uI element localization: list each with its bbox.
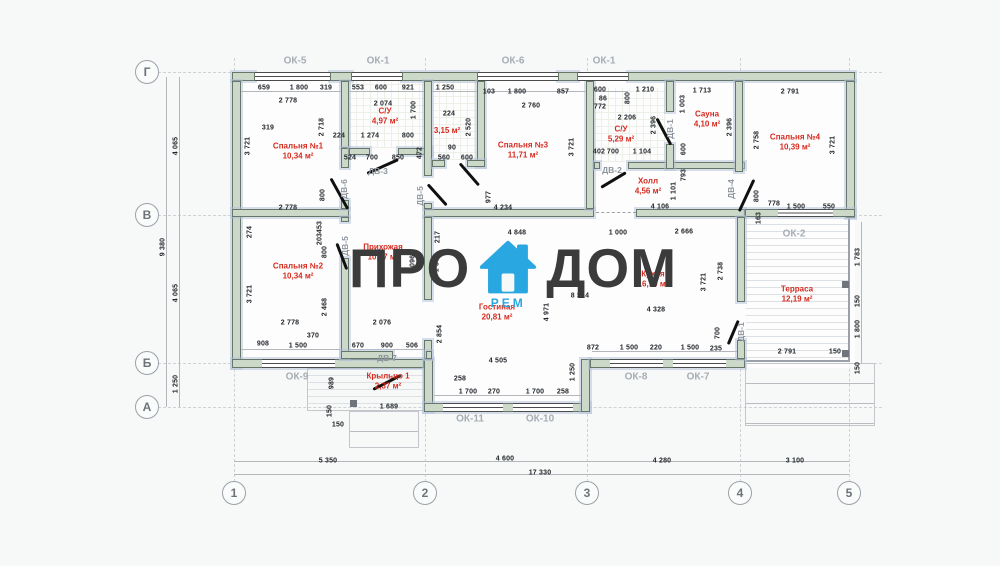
dimension-label: 453 — [317, 221, 324, 233]
dimension-label: 772 — [594, 104, 606, 111]
dimension-label: 4 065 — [173, 284, 180, 303]
dimension-label: 5 350 — [319, 458, 338, 465]
porch-post — [350, 400, 357, 407]
room-area: 10,39 м² — [770, 143, 820, 153]
room-name: С/У — [608, 125, 634, 135]
dimension-label: 2 778 — [279, 98, 298, 105]
room-area: 4,97 м² — [372, 117, 398, 127]
dimension-label: 103 — [483, 89, 495, 96]
room-label: С/У5,29 м² — [608, 125, 634, 146]
dimension-label: 3 721 — [245, 137, 252, 156]
room-area: 11,71 м² — [498, 151, 548, 161]
interior-wall — [737, 340, 745, 359]
dimension-label: 258 — [454, 376, 466, 383]
dimension-label: 600 — [594, 87, 606, 94]
window-ok5 — [255, 72, 330, 81]
dimension-label: 370 — [307, 333, 319, 340]
dimension-label: 1 713 — [693, 88, 712, 95]
interior-wall — [666, 144, 674, 169]
room-label: Спальня №311,71 м² — [498, 141, 548, 162]
dimension-label: 600 — [681, 143, 688, 155]
dimension-label: 1 104 — [633, 149, 652, 156]
interior-wall — [424, 203, 432, 209]
dimension-label: 1 700 — [411, 101, 418, 120]
window-ok10 — [513, 403, 573, 412]
dimension-label: 4 848 — [508, 230, 527, 237]
dimension-label: 2 468 — [322, 298, 329, 317]
dimension-label: 1 000 — [609, 230, 628, 237]
dimension-label: 2 076 — [373, 320, 392, 327]
dimension-label: 989 — [329, 377, 336, 389]
floor-plan-canvas: ПРО РЕМ ДОМ 6591 8003192 7783192241 2748… — [0, 0, 1000, 566]
room-name: Спальня №1 — [273, 142, 323, 152]
exterior-wall — [330, 72, 352, 81]
room-label: Крыльцо 12,37 м² — [366, 372, 409, 393]
dimension-label: 150 — [855, 295, 862, 307]
dimension-label: 2 718 — [319, 118, 326, 137]
dimension-label: 1 800 — [508, 89, 527, 96]
door-label: ДВ-6 — [339, 179, 349, 199]
window-ok9 — [262, 359, 335, 368]
room-label: Спальня №110,34 м² — [273, 142, 323, 163]
dimension-label: 1 783 — [855, 248, 862, 267]
dimension-label: 3 721 — [830, 136, 837, 155]
window-ok7 — [673, 359, 726, 368]
window-label: ОК-1 — [593, 56, 616, 67]
dimension-label: 150 — [327, 405, 334, 417]
dimension-label: 1 800 — [290, 85, 309, 92]
dimension-label: 2 778 — [279, 205, 298, 212]
dimension-label: 9 380 — [160, 238, 167, 257]
dimension-label: 150 — [855, 362, 862, 374]
dimension-label: 857 — [557, 89, 569, 96]
dimension-label: 2 854 — [437, 325, 444, 344]
window-ok1b — [578, 72, 628, 81]
axis-marker-1: 1 — [222, 481, 246, 505]
axis-marker-5: 5 — [837, 481, 861, 505]
dimension-label: 3 721 — [247, 285, 254, 304]
dimension-label: 1 250 — [570, 363, 577, 382]
dimension-label: 2 791 — [781, 89, 800, 96]
interior-wall — [426, 351, 432, 359]
dimension-label: 17 330 — [529, 470, 552, 477]
exterior-wall — [232, 81, 241, 368]
exterior-wall — [846, 81, 855, 218]
house-icon: РЕМ — [479, 239, 537, 297]
dimension-label: 800 — [402, 133, 414, 140]
dimension-label: 1 274 — [361, 133, 380, 140]
exterior-wall — [232, 72, 255, 81]
dimension-label: 274 — [247, 226, 254, 238]
room-name: Терраса — [781, 285, 813, 295]
dim-line — [861, 222, 862, 363]
exterior-wall — [558, 72, 578, 81]
door-label: ДВ-5 — [415, 186, 425, 206]
dimension-label: 800 — [320, 189, 327, 201]
dimension-label: 800 — [754, 190, 761, 202]
dimension-label: 2 778 — [281, 320, 300, 327]
terrace-post — [842, 350, 849, 357]
interior-wall — [666, 81, 674, 112]
room-area: 4,56 м² — [635, 187, 661, 197]
dimension-label: 4 234 — [494, 205, 513, 212]
dimension-label: 2 396 — [727, 118, 734, 137]
room-label: Спальня №410,39 м² — [770, 133, 820, 154]
dimension-label: 553 — [352, 85, 364, 92]
room-area: 12,19 м² — [781, 295, 813, 305]
dimension-label: 2 738 — [718, 262, 725, 281]
dimension-label: 258 — [557, 389, 569, 396]
dimension-label: 224 — [443, 111, 455, 118]
dimension-label: 1 500 — [681, 345, 700, 352]
door-label: ДВ-2 — [602, 165, 622, 175]
porch-stairs — [349, 411, 419, 448]
dimension-label: 560 — [438, 155, 450, 162]
dimension-label: 270 — [488, 389, 500, 396]
window-label: ОК-10 — [526, 414, 554, 425]
dimension-label: 150 — [829, 349, 841, 356]
dimension-label: 3 721 — [569, 138, 576, 157]
exterior-wall — [402, 72, 478, 81]
dim-line — [179, 77, 180, 407]
room-area: 4,10 м² — [694, 120, 720, 130]
room-label: Холл4,56 м² — [635, 177, 661, 198]
door-label: ДВ-7 — [377, 353, 397, 363]
dimension-label: 850 — [392, 155, 404, 162]
terrace-post — [842, 281, 849, 288]
watermark: ПРО РЕМ ДОМ — [349, 239, 677, 297]
dimension-label: 1 250 — [173, 375, 180, 394]
dimension-label: 1 500 — [787, 204, 806, 211]
door-label: ДВ-3 — [368, 166, 388, 176]
door-label: ДВ-1 — [736, 322, 746, 342]
window-label: ОК-11 — [456, 414, 484, 425]
dimension-label: 700 — [607, 149, 619, 156]
room-label: 3,15 м² — [434, 126, 460, 136]
window-label: ОК-2 — [783, 229, 806, 240]
dimension-label: 778 — [768, 201, 780, 208]
window-label: ОК-1 — [367, 56, 390, 67]
room-area: 10,34 м² — [273, 272, 323, 282]
dimension-label: 472 — [417, 147, 424, 159]
room-name: Холл — [635, 177, 661, 187]
terrace-open-edge — [745, 360, 849, 362]
exterior-wall — [628, 72, 855, 81]
axis-marker-2: 2 — [413, 481, 437, 505]
watermark-badge: РЕМ — [491, 296, 526, 310]
dimension-label: 700 — [366, 155, 378, 162]
dimension-label: 800 — [322, 246, 329, 258]
dimension-label: 150 — [332, 422, 344, 429]
watermark-text-left: ПРО — [349, 241, 470, 296]
dimension-label: 600 — [375, 85, 387, 92]
dimension-label: 86 — [599, 96, 607, 103]
dimension-label: 4 328 — [647, 307, 666, 314]
interior-wall — [737, 217, 745, 302]
exterior-wall — [581, 359, 590, 412]
axis-marker-А: А — [135, 395, 159, 419]
dim-line — [240, 349, 428, 350]
interior-wall — [341, 217, 349, 222]
room-area: 3,15 м² — [434, 126, 460, 136]
dimension-label: 524 — [344, 155, 356, 162]
dimension-label: 1 689 — [380, 404, 399, 411]
dimension-label: 550 — [823, 204, 835, 211]
room-name: Спальня №3 — [498, 141, 548, 151]
window-ok11 — [443, 403, 503, 412]
dimension-label: 2 791 — [778, 349, 797, 356]
dimension-label: 800 — [625, 92, 632, 104]
dimension-label: 3 721 — [701, 273, 708, 292]
dimension-label: 4 600 — [496, 456, 515, 463]
dimension-label: 1 700 — [526, 389, 545, 396]
room-area: 10,34 м² — [273, 152, 323, 162]
interior-wall — [341, 258, 349, 359]
dimension-label: 600 — [461, 155, 473, 162]
door-label: ДВ-1 — [665, 119, 675, 139]
dimension-label: 1 500 — [289, 343, 308, 350]
window-ok8 — [610, 359, 663, 368]
dimension-label: 2 758 — [754, 131, 761, 150]
room-label: Терраса12,19 м² — [781, 285, 813, 306]
room-label: С/У4,97 м² — [372, 107, 398, 128]
dimension-label: 1 500 — [620, 345, 639, 352]
dimension-label: 2 666 — [675, 229, 694, 236]
interior-wall — [594, 162, 600, 169]
dimension-label: 163 — [756, 212, 763, 224]
window-label: ОК-9 — [286, 372, 309, 383]
dimension-label: 319 — [262, 125, 274, 132]
interior-wall — [586, 81, 594, 209]
dimension-label: 506 — [406, 343, 418, 350]
dimension-label: 4 971 — [544, 303, 551, 322]
interior-wall — [735, 81, 743, 172]
window-ok1 — [352, 72, 402, 81]
watermark-text-right: ДОМ — [546, 241, 677, 296]
dimension-label: 4 106 — [651, 204, 670, 211]
interior-wall — [424, 81, 432, 176]
window-label: ОК-6 — [502, 56, 525, 67]
dimension-label: 2 396 — [651, 116, 658, 135]
dimension-label: 4 280 — [653, 458, 672, 465]
axis-marker-Б: Б — [135, 351, 159, 375]
dimension-label: 224 — [333, 133, 345, 140]
axis-marker-4: 4 — [728, 481, 752, 505]
room-name: Крыльцо 1 — [366, 372, 409, 382]
dimension-label: 220 — [650, 345, 662, 352]
dimension-label: 872 — [587, 345, 599, 352]
door-label: ДВ-4 — [726, 179, 736, 199]
dimension-label: 2 520 — [466, 118, 473, 137]
dimension-label: 908 — [257, 341, 269, 348]
dimension-label: 977 — [486, 191, 493, 203]
dimension-label: 793 — [681, 169, 688, 181]
room-area: 5,29 м² — [608, 135, 634, 145]
dimension-label: 235 — [710, 346, 722, 353]
room-name: Сауна — [694, 110, 720, 120]
axis-marker-В: В — [135, 203, 159, 227]
room-name: Спальня №4 — [770, 133, 820, 143]
dimension-label: 670 — [352, 343, 364, 350]
dimension-label: 921 — [402, 85, 414, 92]
room-label: Сауна4,10 м² — [694, 110, 720, 131]
dimension-label: 4 505 — [489, 358, 508, 365]
dimension-label: 402 — [593, 149, 605, 156]
window-ok6 — [478, 72, 558, 81]
dimension-label: 4 065 — [173, 137, 180, 156]
axis-marker-Г: Г — [135, 60, 159, 84]
dimension-label: 1 210 — [636, 87, 655, 94]
room-area: 20,81 м² — [479, 313, 515, 323]
room-area: 2,37 м² — [366, 382, 409, 392]
dimension-label: 700 — [715, 327, 722, 339]
dimension-label: 2 760 — [522, 103, 541, 110]
dimension-label: 2 206 — [618, 115, 637, 122]
dimension-label: 3 100 — [786, 458, 805, 465]
dimension-label: 900 — [381, 343, 393, 350]
window-label: ОК-5 — [284, 56, 307, 67]
axis-marker-3: 3 — [575, 481, 599, 505]
dimension-label: 203 — [317, 233, 324, 245]
dimension-label: 90 — [448, 145, 456, 152]
cased-opening — [596, 212, 636, 213]
dimension-label: 1 800 — [855, 320, 862, 339]
terrace-open-edge — [848, 218, 850, 362]
dimension-label: 1 700 — [459, 389, 478, 396]
dimension-label: 1 250 — [436, 85, 455, 92]
room-label: Спальня №210,34 м² — [273, 262, 323, 283]
dimension-label: 659 — [258, 85, 270, 92]
dimension-label: 1 003 — [680, 95, 687, 114]
window-label: ОК-8 — [625, 372, 648, 383]
window-label: ОК-7 — [687, 372, 710, 383]
room-name: С/У — [372, 107, 398, 117]
dimension-label: 319 — [320, 85, 332, 92]
room-name: Спальня №2 — [273, 262, 323, 272]
dimension-label: 1 101 — [671, 182, 678, 201]
